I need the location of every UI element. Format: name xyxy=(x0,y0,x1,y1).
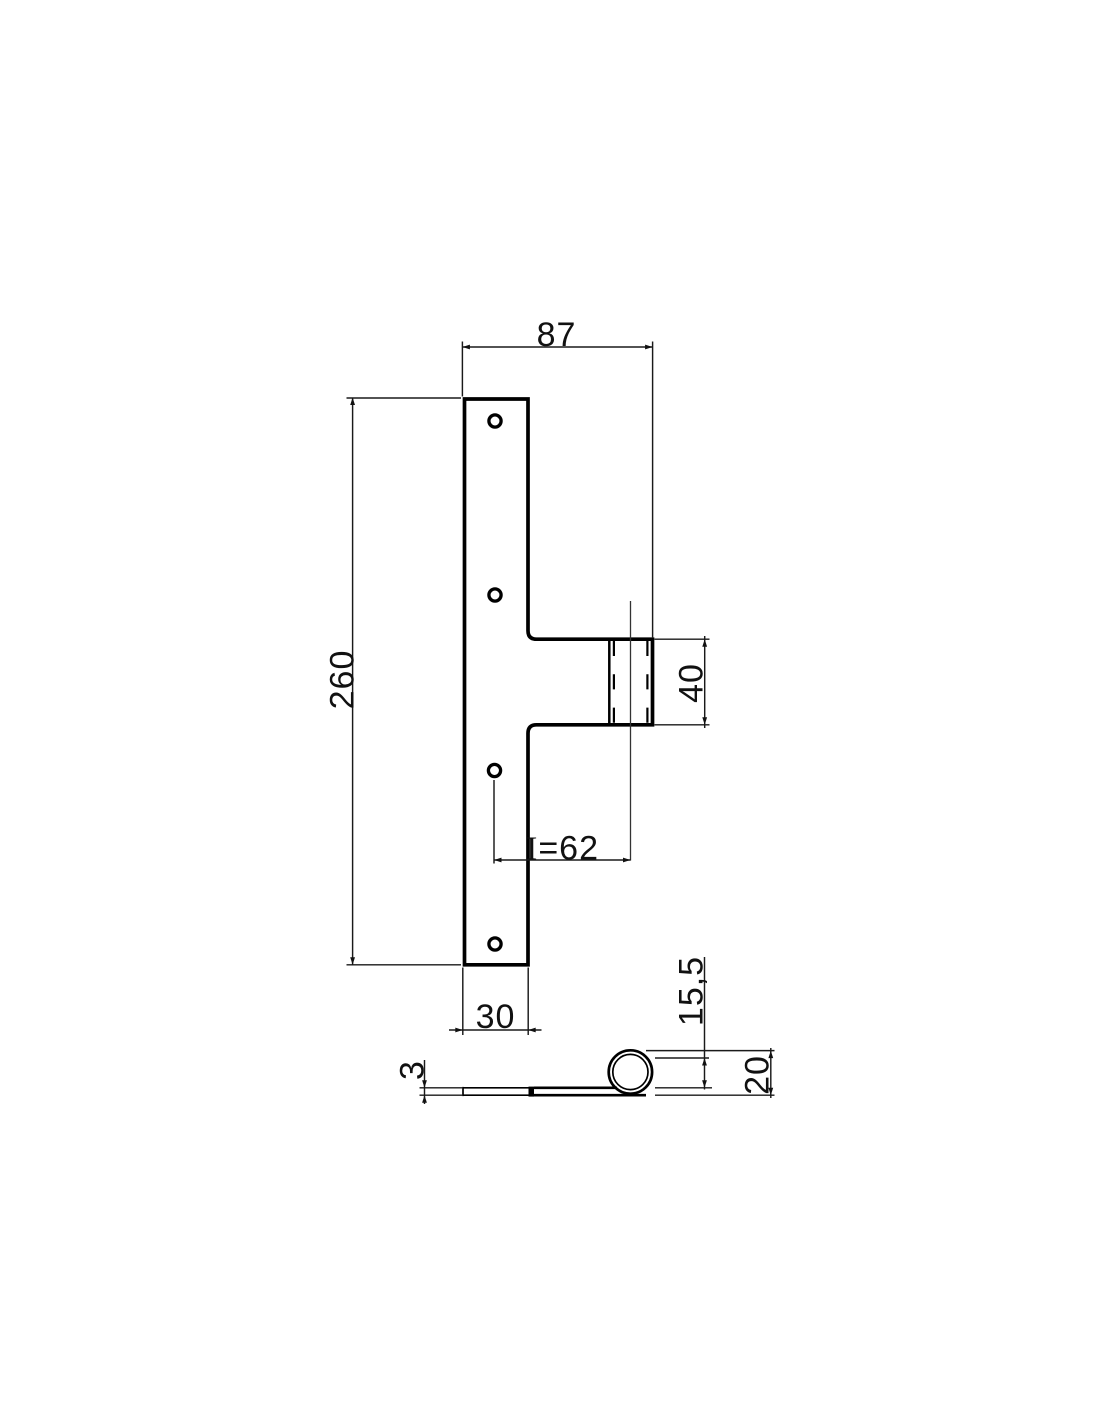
svg-text:20: 20 xyxy=(739,1055,777,1095)
svg-text:15,5: 15,5 xyxy=(673,956,711,1026)
svg-text:87: 87 xyxy=(537,316,577,354)
svg-text:3: 3 xyxy=(394,1060,432,1080)
svg-text:I=62: I=62 xyxy=(526,830,599,868)
svg-text:30: 30 xyxy=(476,998,516,1036)
svg-text:260: 260 xyxy=(324,650,362,710)
svg-text:40: 40 xyxy=(673,663,711,703)
